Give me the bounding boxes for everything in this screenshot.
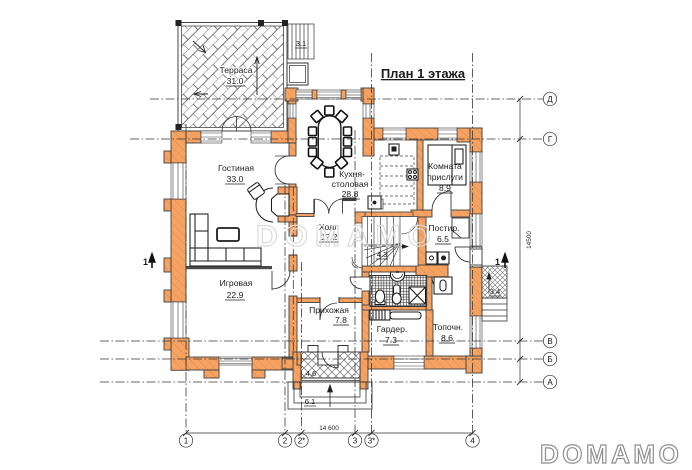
svg-text:Б: Б xyxy=(547,355,552,364)
svg-text:1: 1 xyxy=(143,257,148,267)
svg-text:План 1 этажа: План 1 этажа xyxy=(381,66,466,81)
svg-text:Терраса: Терраса xyxy=(220,65,253,75)
svg-text:прислуги: прислуги xyxy=(427,172,463,182)
svg-text:1: 1 xyxy=(495,257,500,267)
svg-text:22.9: 22.9 xyxy=(227,290,244,300)
svg-text:3: 3 xyxy=(353,437,358,446)
svg-text:1: 1 xyxy=(184,437,189,446)
svg-text:Д: Д xyxy=(547,95,553,104)
svg-text:Прихожая: Прихожая xyxy=(309,305,349,315)
svg-text:Г: Г xyxy=(548,135,553,144)
svg-text:DOMAMO: DOMAMO xyxy=(540,439,682,469)
svg-text:Комната: Комната xyxy=(428,161,462,171)
svg-text:3*: 3* xyxy=(368,437,376,446)
svg-text:Гостиная: Гостиная xyxy=(218,163,254,173)
svg-text:Топочн.: Топочн. xyxy=(433,322,463,332)
svg-text:2*: 2* xyxy=(298,437,306,446)
svg-text:7.3: 7.3 xyxy=(385,335,397,345)
svg-text:столовая: столовая xyxy=(332,179,369,189)
svg-text:6.1: 6.1 xyxy=(305,397,316,406)
svg-text:2: 2 xyxy=(283,437,288,446)
svg-text:DOMAMO: DOMAMO xyxy=(256,220,438,253)
svg-text:3.4: 3.4 xyxy=(490,287,501,296)
svg-text:3.1: 3.1 xyxy=(296,39,307,48)
svg-text:Гардер.: Гардер. xyxy=(377,324,408,334)
svg-text:В: В xyxy=(547,337,552,346)
svg-text:6.5: 6.5 xyxy=(437,234,449,244)
svg-text:4.6: 4.6 xyxy=(306,369,317,378)
svg-text:31.0: 31.0 xyxy=(227,76,244,86)
svg-text:Игровая: Игровая xyxy=(220,278,253,288)
svg-text:7.8: 7.8 xyxy=(335,315,347,325)
svg-text:4: 4 xyxy=(470,437,475,446)
svg-text:28.8: 28.8 xyxy=(342,189,359,199)
svg-text:14 600: 14 600 xyxy=(319,425,339,432)
svg-text:8.6: 8.6 xyxy=(441,333,453,343)
svg-text:14500: 14500 xyxy=(526,231,533,249)
svg-text:33.0: 33.0 xyxy=(227,174,244,184)
svg-text:А: А xyxy=(547,378,553,387)
svg-text:8.9: 8.9 xyxy=(439,183,451,193)
svg-text:Кухня-: Кухня- xyxy=(339,169,365,179)
